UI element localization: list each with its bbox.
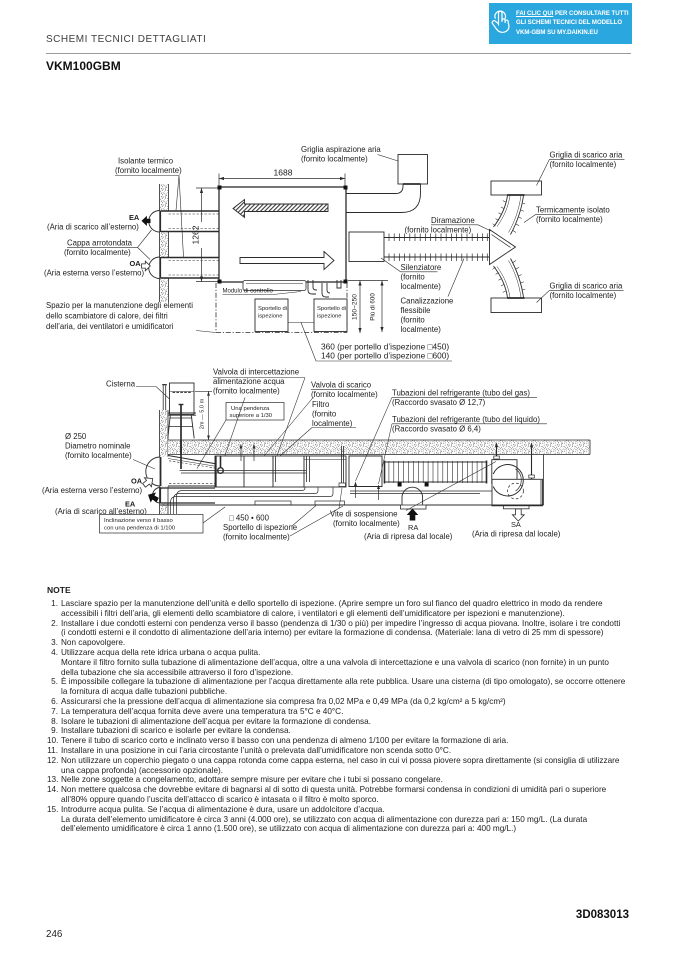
- svg-text:SA: SA: [511, 520, 521, 529]
- svg-text:(Aria di scarico all’esterno): (Aria di scarico all’esterno): [47, 223, 139, 232]
- svg-text:(fornito localmente): (fornito localmente): [536, 215, 603, 224]
- svg-text:alimentazione acqua: alimentazione acqua: [213, 377, 285, 386]
- svg-text:(fornito localmente): (fornito localmente): [333, 519, 400, 528]
- svg-text:(Aria di ripresa dal locale): (Aria di ripresa dal locale): [364, 532, 453, 541]
- svg-text:Spazio per la manutenzione deg: Spazio per la manutenzione degli element…: [46, 301, 193, 310]
- svg-text:(fornito localmente): (fornito localmente): [213, 387, 280, 396]
- svg-text:(Aria di ripresa dal locale): (Aria di ripresa dal locale): [472, 530, 561, 539]
- svg-text:dell’aria, dei ventilatori e u: dell’aria, dei ventilatori e umidificato…: [46, 322, 174, 331]
- svg-text:localmente): localmente): [312, 419, 353, 428]
- svg-text:Sportello di: Sportello di: [317, 306, 346, 312]
- svg-text:Griglia di scarico aria: Griglia di scarico aria: [550, 151, 623, 160]
- svg-text:140 (per portello d’ispezione: 140 (per portello d’ispezione □600): [321, 351, 449, 361]
- svg-text:EA: EA: [129, 213, 140, 222]
- svg-text:Isolante termico: Isolante termico: [118, 157, 174, 166]
- svg-text:localmente): localmente): [401, 282, 442, 291]
- svg-text:Tubazioni del refrigerante (tu: Tubazioni del refrigerante (tubo del gas…: [392, 389, 530, 398]
- svg-text:Sportello di ispezione: Sportello di ispezione: [223, 523, 297, 532]
- svg-text:ispezione: ispezione: [258, 314, 283, 320]
- svg-text:Canalizzazione: Canalizzazione: [401, 297, 454, 306]
- svg-text:Sportello di: Sportello di: [258, 306, 287, 312]
- svg-text:(fornito localmente): (fornito localmente): [311, 390, 378, 399]
- svg-text:dello scambiatore di calore, d: dello scambiatore di calore, dei filtri: [46, 311, 168, 320]
- svg-text:Tubazioni del refrigerante (tu: Tubazioni del refrigerante (tubo del liq…: [392, 415, 540, 424]
- svg-text:(Raccordo svasato Ø 12,7): (Raccordo svasato Ø 12,7): [392, 398, 486, 407]
- svg-text:Griglia aspirazione aria: Griglia aspirazione aria: [301, 145, 381, 154]
- svg-text:Più di 600: Più di 600: [370, 293, 377, 321]
- svg-text:Una pendenza: Una pendenza: [231, 406, 270, 412]
- svg-text:(fornito localmente): (fornito localmente): [64, 248, 131, 257]
- svg-text:(fornito: (fornito: [401, 273, 426, 282]
- svg-text:localmente): localmente): [401, 325, 442, 334]
- svg-text:ispezione: ispezione: [317, 314, 342, 320]
- svg-text:Griglia di scarico aria: Griglia di scarico aria: [550, 282, 623, 291]
- svg-text:150~250: 150~250: [352, 294, 359, 320]
- svg-text:(fornito localmente): (fornito localmente): [115, 166, 182, 175]
- svg-text:(fornito localmente): (fornito localmente): [550, 291, 617, 300]
- svg-text:Diametro nominale: Diametro nominale: [65, 442, 130, 451]
- svg-text:Filtro: Filtro: [312, 400, 330, 409]
- svg-text:Cappa arrotondata: Cappa arrotondata: [67, 239, 133, 248]
- svg-text:(fornito localmente): (fornito localmente): [405, 226, 472, 235]
- svg-text:(fornito localmente): (fornito localmente): [223, 533, 290, 542]
- svg-text:Modulo di controllo: Modulo di controllo: [223, 289, 274, 295]
- svg-text:con una pendenza di 1/100: con una pendenza di 1/100: [104, 526, 176, 532]
- svg-text:Valvola di scarico: Valvola di scarico: [311, 381, 372, 390]
- svg-text:1688: 1688: [274, 168, 293, 178]
- svg-text:OA: OA: [131, 477, 143, 486]
- svg-text:Inclinazione verso il basso: Inclinazione verso il basso: [104, 518, 173, 524]
- svg-text:(Aria esterna verso l’esterno): (Aria esterna verso l’esterno): [42, 486, 143, 495]
- svg-text:Diramazione: Diramazione: [431, 216, 475, 225]
- svg-text:(fornito localmente): (fornito localmente): [65, 451, 132, 460]
- svg-text:(Raccordo svasato Ø 6,4): (Raccordo svasato Ø 6,4): [392, 425, 481, 434]
- svg-text:(fornito localmente): (fornito localmente): [301, 155, 368, 164]
- svg-text:superiore a 1/30: superiore a 1/30: [230, 413, 273, 419]
- svg-text:Cisterna: Cisterna: [106, 380, 136, 389]
- svg-text:OA: OA: [130, 259, 142, 268]
- svg-text:1262: 1262: [191, 225, 201, 244]
- svg-text:(fornito: (fornito: [312, 410, 337, 419]
- svg-text:□ 450 • 600: □ 450 • 600: [229, 514, 270, 523]
- svg-text:Valvola di intercettazione: Valvola di intercettazione: [213, 368, 299, 377]
- svg-text:Vite di sospensione: Vite di sospensione: [330, 510, 397, 519]
- svg-text:Silenziatore: Silenziatore: [401, 263, 442, 272]
- svg-text:(fornito: (fornito: [401, 316, 426, 325]
- svg-text:(Aria esterna verso l’esterno): (Aria esterna verso l’esterno): [44, 269, 145, 278]
- svg-text:2m — 5.0 m: 2m — 5.0 m: [200, 398, 206, 429]
- svg-text:(fornito localmente): (fornito localmente): [550, 160, 617, 169]
- svg-text:RA: RA: [408, 523, 418, 532]
- svg-text:Ø 250: Ø 250: [65, 432, 87, 441]
- svg-text:Termicamente isolato: Termicamente isolato: [536, 206, 610, 215]
- svg-text:flessibile: flessibile: [401, 306, 431, 315]
